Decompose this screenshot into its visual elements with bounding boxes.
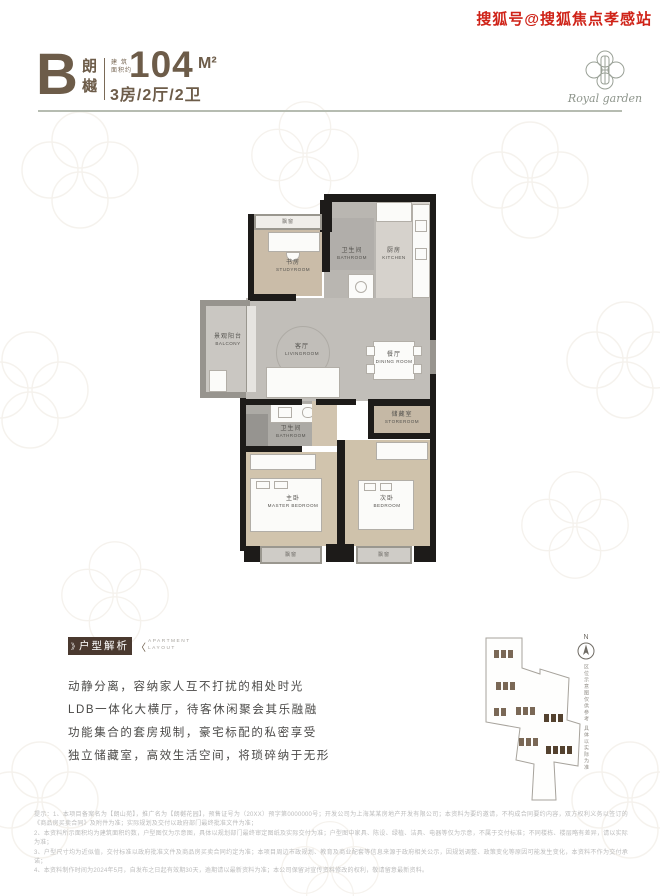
kitchen-counter-top (376, 202, 412, 222)
wall (244, 446, 302, 452)
wall (248, 294, 296, 301)
dining-chair (413, 364, 422, 374)
sohu-watermark: 搜狐号@搜狐焦点孝感站 (476, 8, 652, 29)
dining-chair (366, 364, 375, 374)
pillow (274, 481, 288, 489)
quatrefoil-pattern (520, 470, 630, 580)
quatrefoil-pattern (20, 110, 140, 230)
area-value: 104 (129, 46, 194, 83)
bay-window-label: 飘窗 (366, 551, 402, 558)
north-arrow: N (576, 634, 596, 665)
wall (368, 433, 430, 439)
wall (326, 544, 354, 562)
disclaimer-line: 4、本资料制作时间为2024年5月，自发布之日起有效期30天，逾期请以最新资料为… (34, 867, 628, 876)
analysis-badge-en: APARTMENT LAYOUT (148, 639, 191, 652)
wall (430, 194, 436, 340)
bay-window-label: 飘窗 (270, 218, 306, 225)
storeroom-floor (374, 406, 430, 433)
layout-spec: 3房/2厅/2卫 (110, 81, 202, 105)
wall (240, 401, 246, 551)
dining-chair (366, 346, 375, 356)
wall (322, 230, 330, 272)
dining-chair (413, 346, 422, 356)
wall (368, 399, 374, 435)
royal-garden-logo: Royal garden (560, 50, 650, 105)
unit-letter: B (36, 46, 78, 104)
dining-table (373, 341, 415, 380)
quatrefoil-pattern (565, 300, 660, 420)
analysis-line: 独立储藏室，高效生活空间，将琐碎纳于无形 (68, 747, 328, 763)
bedroom-closet (376, 442, 428, 460)
quatrefoil-pattern (0, 330, 90, 450)
pillow (364, 483, 376, 491)
disclaimer-line: 3、户型尺寸均为近似值，交付标准以政府批准文件及商品房买卖合同约定为准；本项目周… (34, 849, 628, 868)
washer-drum-icon (355, 281, 367, 293)
logo-text: Royal garden (560, 92, 650, 105)
sink-icon (278, 407, 292, 418)
wall (430, 374, 436, 548)
bay-window-label: 飘窗 (273, 551, 309, 558)
badge-title: 户型解析 (79, 640, 129, 652)
unit-name: 朗樾 (82, 57, 99, 97)
wall (316, 399, 356, 405)
wall (368, 399, 430, 406)
disclaimer-line: 2、本资料所示面积均为建筑面积约数，户型图仅为示意图，具体以规划部门最终审定图纸… (34, 830, 628, 849)
header-divider (104, 58, 105, 100)
balcony-wall (200, 300, 206, 398)
balcony-sink (209, 370, 227, 392)
balcony-door (246, 306, 256, 392)
pillow (256, 481, 270, 489)
analysis-line: LDB一体化大横厅，待客休闲聚会其乐融融 (68, 701, 328, 717)
balcony-wall (200, 300, 250, 306)
wall (414, 546, 436, 562)
stove-icon (415, 220, 427, 232)
disclaimer-line: 提示：1、本项目备案名为【朗山苑】，推广名为【朗樾花园】，预售证号为（20XX）… (34, 811, 628, 830)
analysis-badge: 》户型解析 (68, 637, 132, 655)
quatrefoil-pattern (60, 540, 170, 650)
study-desk (268, 232, 320, 252)
badge-left-mark: 》 (71, 642, 79, 651)
wall (324, 194, 436, 202)
master-wardrobe (250, 454, 316, 470)
badge-right-mark: 〈 (136, 639, 146, 654)
bathroom1-floor (330, 218, 374, 270)
sofa (266, 367, 340, 398)
sink-icon (415, 248, 427, 260)
hallway-floor (312, 401, 337, 446)
disclaimer: 提示：1、本项目备案名为【朗山苑】，推广名为【朗樾花园】，预售证号为（20XX）… (34, 811, 628, 877)
analysis-line: 动静分离，容纳家人互不打扰的相处时光 (68, 678, 328, 694)
analysis-line: 功能集合的套房规制，豪宅标配的私密享受 (68, 724, 328, 740)
shower (246, 414, 268, 446)
wall (244, 546, 260, 562)
wall (244, 399, 302, 405)
floor-plan: 飘窗 飘窗 飘窗 书房STUDYROOM 卫生间BATHROOM 厨房KITCH… (190, 190, 466, 580)
window (430, 340, 436, 374)
wall (337, 440, 345, 546)
pillow (380, 483, 392, 491)
balcony-wall (200, 392, 246, 398)
sitemap-side-text: 区位示意图仅供参考 具体以实际为准 (583, 664, 590, 771)
quatrefoil-pattern (470, 120, 590, 240)
brochure-page: 搜狐号@搜狐焦点孝感站 B 朗樾 建筑 面积约 104 M² 3房/2厅/2卫 … (0, 0, 660, 896)
area-unit: M² (198, 55, 217, 73)
emblem-icon (584, 50, 626, 90)
header-rule (38, 110, 622, 112)
compass-icon (577, 642, 595, 660)
